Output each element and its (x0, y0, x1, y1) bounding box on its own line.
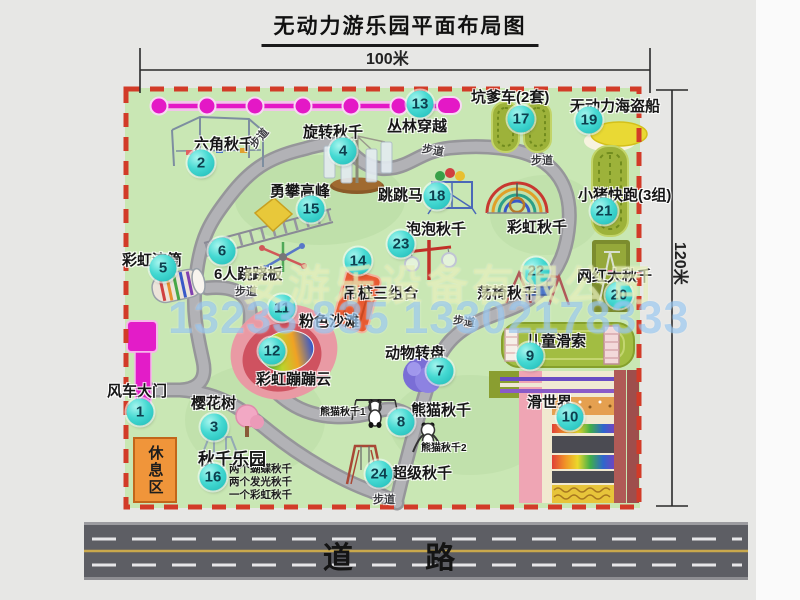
park-plan-image: 无动力游乐园平面布局图 100米 120米 休息区 两个蝴蝶秋千两个发光秋千一个… (0, 0, 800, 600)
rotating-swing-icon (324, 136, 392, 194)
piggy-run-track-icon (592, 146, 628, 236)
photo-margin (756, 0, 800, 600)
map-graphics (0, 0, 800, 600)
kids-zipline-icon (502, 323, 634, 367)
road (84, 522, 748, 580)
big-swing-icon (592, 240, 630, 312)
